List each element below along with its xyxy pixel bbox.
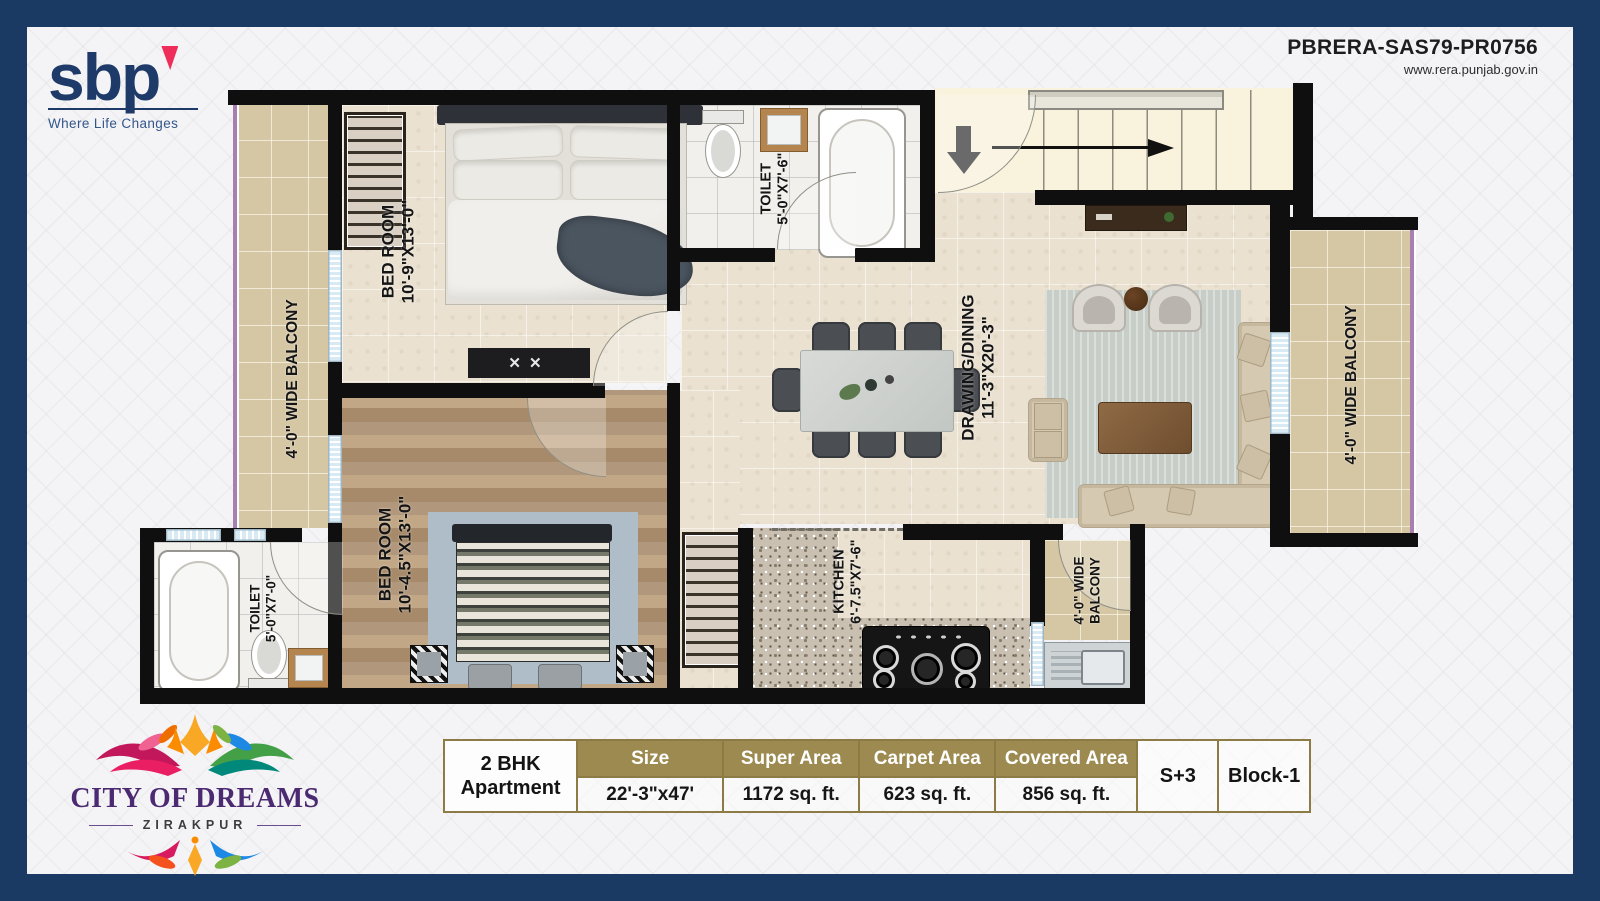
project-name: CITY OF DREAMS: [40, 783, 350, 815]
unit-type-cell: 2 BHK Apartment: [445, 741, 578, 811]
bed1-pillow: [452, 124, 564, 162]
room-dims: 6'-7.5"X7'-6": [848, 497, 865, 667]
window: [166, 529, 221, 541]
room-name: 4'-0" WIDE BALCONY: [284, 239, 302, 519]
bed1-pillow: [569, 125, 680, 161]
wall: [1030, 536, 1045, 626]
kitchen-floor: [838, 528, 1038, 620]
window: [1031, 622, 1044, 686]
wall: [738, 528, 753, 690]
wall: [1293, 83, 1313, 217]
wall: [1288, 217, 1418, 230]
size-column: Size 22'-3"x47': [578, 741, 724, 811]
room-name: DRAWING/DINING: [958, 228, 978, 508]
toilet1-label: TOILET 5'-0"X7'-6": [758, 109, 791, 269]
wall: [140, 528, 154, 704]
stairs-window-bar: [1028, 90, 1224, 110]
super-area-header: Super Area: [724, 741, 858, 778]
accent-chair: [1072, 284, 1126, 332]
window: [328, 435, 342, 523]
brochure-canvas: sbp Where Life Changes PBRERA-SAS79-PR07…: [0, 0, 1600, 901]
room-name: BALCONY: [1087, 526, 1103, 656]
divider-line: [89, 825, 133, 826]
stairs-arrow-icon: [1148, 139, 1174, 157]
floors-cell: S+3: [1138, 741, 1219, 811]
room-dims: 10'-4.5"X13'-0": [395, 425, 415, 685]
wall: [667, 383, 680, 688]
wall: [1035, 190, 1293, 205]
wall: [1288, 533, 1418, 547]
toilet1-wc: [700, 110, 744, 180]
room-name: TOILET: [758, 109, 775, 269]
gas-stove: [862, 626, 990, 692]
bed2-stool: [468, 664, 512, 690]
bed2-stool: [538, 664, 582, 690]
dining-table: [800, 350, 954, 432]
room-name: BED ROOM: [375, 425, 395, 685]
size-header: Size: [578, 741, 722, 778]
right-balcony-railing: [1410, 230, 1416, 533]
block-cell: Block-1: [1219, 741, 1309, 811]
bedroom2-bed: [456, 542, 610, 662]
covered-area-column: Covered Area 856 sq. ft.: [996, 741, 1138, 811]
left-balcony-floor: [234, 103, 328, 528]
spec-table: 2 BHK Apartment Size 22'-3"x47' Super Ar…: [443, 739, 1311, 813]
left-balcony-label: 4'-0" WIDE BALCONY: [284, 239, 302, 519]
room-name: TOILET: [247, 534, 263, 684]
bed2-nightstand: [410, 645, 448, 683]
bench-x-marks: ✕✕: [508, 354, 549, 372]
kitchen-label: KITCHEN 6'-7.5"X7'-6": [831, 497, 864, 667]
city-of-dreams-logo: CITY OF DREAMS ZIRAKPUR: [40, 710, 350, 885]
armchair-left: [1028, 398, 1068, 462]
super-area-value: 1172 sq. ft.: [724, 778, 858, 811]
drawing-dining-label: DRAWING/DINING 11'-3"X20'-3": [958, 228, 997, 508]
room-dims: 5'-0"X7'-0": [263, 534, 279, 684]
wall: [920, 90, 935, 262]
bedroom1-bench: ✕✕: [468, 348, 590, 378]
tv-console: [1085, 205, 1187, 231]
carpet-area-column: Carpet Area 623 sq. ft.: [860, 741, 996, 811]
room-name: KITCHEN: [831, 497, 848, 667]
wall: [328, 383, 605, 398]
logo-ornament-bottom-icon: [110, 832, 280, 880]
bedroom1-label: BED ROOM 10'-9"X13'-0": [378, 122, 417, 382]
coffee-table: [1098, 402, 1192, 454]
wall: [1270, 434, 1290, 547]
room-name: BED ROOM: [378, 122, 398, 382]
wall: [855, 248, 935, 262]
toilet2-bathtub: [158, 550, 240, 692]
project-location-row: ZIRAKPUR: [40, 818, 350, 832]
logo-ornament-top-icon: [80, 710, 310, 776]
divider-line: [257, 825, 301, 826]
accent-chair: [1148, 284, 1202, 332]
toilet2-sink: [288, 648, 330, 688]
bedroom2-label: BED ROOM 10'-4.5"X13'-0": [375, 425, 414, 685]
wall: [667, 103, 680, 311]
bed1-pillow: [453, 160, 563, 200]
unit-type-line2: Apartment: [461, 776, 561, 800]
room-name: 4'-0" WIDE: [1071, 526, 1087, 656]
size-value: 22'-3"x47': [578, 778, 722, 811]
unit-type-line1: 2 BHK: [481, 752, 541, 776]
wall: [1130, 524, 1145, 704]
left-balcony-railing: [233, 103, 239, 528]
bed1-pillow: [570, 160, 680, 200]
bedroom2-wardrobe: [682, 532, 744, 668]
window: [1270, 332, 1290, 434]
room-dims: 11'-3"X20'-3": [978, 228, 998, 508]
room-name: 4'-0" WIDE BALCONY: [1343, 245, 1361, 525]
super-area-column: Super Area 1172 sq. ft.: [724, 741, 860, 811]
utility-balcony-label: 4'-0" WIDE BALCONY: [1071, 526, 1102, 656]
side-table: [1124, 287, 1148, 311]
sofa-pillow: [1239, 389, 1272, 422]
covered-area-value: 856 sq. ft.: [996, 778, 1136, 811]
bedroom1-bed-headboard: [437, 105, 703, 125]
window: [328, 250, 342, 362]
sofa-pillow: [1166, 486, 1196, 516]
bedroom2-bed-headboard: [452, 524, 612, 542]
carpet-area-value: 623 sq. ft.: [860, 778, 994, 811]
carpet-area-header: Carpet Area: [860, 741, 994, 778]
right-balcony-label: 4'-0" WIDE BALCONY: [1343, 245, 1361, 525]
wall: [140, 688, 1145, 704]
bed2-nightstand: [616, 645, 654, 683]
wall: [1270, 192, 1290, 332]
room-dims: 5'-0"X7'-6": [775, 109, 792, 269]
room-dims: 10'-9"X13'-0": [398, 122, 418, 382]
toilet2-label: TOILET 5'-0"X7'-0": [247, 534, 278, 684]
covered-area-header: Covered Area: [996, 741, 1136, 778]
project-location: ZIRAKPUR: [143, 818, 248, 832]
